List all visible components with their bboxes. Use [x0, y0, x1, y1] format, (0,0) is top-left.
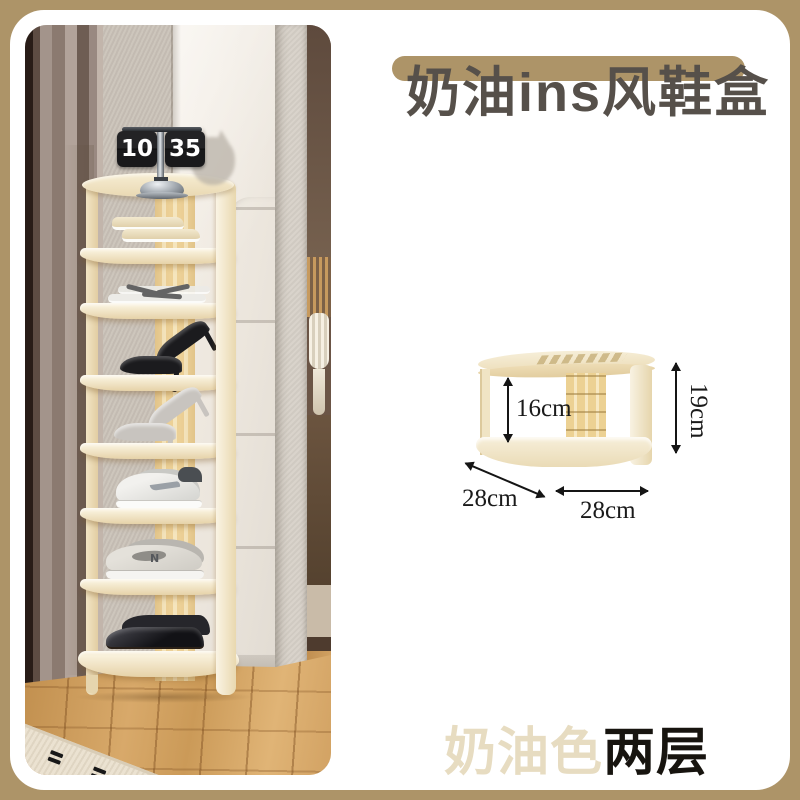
clock-stem	[157, 127, 164, 179]
gray-flip-flops	[108, 285, 214, 305]
clock-hour-card: 10	[117, 131, 157, 167]
high-top-sneakers	[116, 467, 204, 508]
width-arrow	[556, 490, 648, 492]
page-title: 奶油ins风鞋盒	[406, 48, 770, 127]
pleated-lamp	[309, 313, 329, 369]
heel-flat	[120, 356, 182, 374]
width-label: 28cm	[580, 497, 636, 525]
diagram-back-slats	[566, 373, 606, 447]
inner-height-label: 16cm	[516, 395, 572, 423]
dimension-diagram: 16cm 19cm 28cm 28cm	[440, 345, 750, 540]
depth-label: 28cm	[462, 485, 518, 513]
silver-high-heels	[114, 399, 206, 443]
lifestyle-photo: N 10 35	[25, 25, 331, 775]
runner-sole	[106, 570, 204, 579]
rack-shelf-2	[80, 303, 236, 319]
flip-clock: 10 35	[110, 121, 216, 199]
inner-height-arrow	[507, 378, 509, 442]
rack-shelf-6	[80, 579, 236, 595]
nook-band	[307, 637, 331, 651]
running-sneakers: N	[106, 539, 208, 579]
variant-tier-label: 两层	[603, 724, 709, 782]
slipper-right	[122, 229, 200, 242]
product-card: N 10 35 奶油ins风鞋盒	[10, 10, 790, 790]
variant-color-name: 奶油色	[444, 724, 603, 782]
clock-minute-card: 35	[165, 131, 205, 167]
side-nook	[307, 25, 331, 725]
nook-wall	[307, 585, 331, 637]
heel-flat	[114, 423, 176, 441]
rack-shelf-4	[80, 443, 236, 459]
rack-shelf-3	[80, 375, 236, 391]
black-dress-shoes	[106, 615, 212, 651]
runner-logo: N	[150, 552, 159, 565]
nook-cabinet	[307, 415, 331, 585]
rack-post-right	[216, 181, 236, 695]
rack-shelf-7	[78, 651, 239, 677]
header: 奶油ins风鞋盒	[390, 46, 790, 126]
cream-slippers	[112, 217, 207, 248]
total-height-arrow	[675, 363, 677, 453]
rack-shelf-5	[80, 508, 236, 524]
sneaker-collar	[178, 467, 202, 482]
wall-pillar	[275, 25, 307, 697]
dress-shoe-front	[106, 627, 204, 649]
nook-slats	[307, 257, 331, 317]
total-height-label: 19cm	[684, 383, 712, 439]
lamp-base	[313, 369, 325, 415]
corner-shoe-rack: N	[80, 125, 245, 705]
clock-base-foot	[136, 192, 188, 199]
rack-foot-left	[86, 675, 98, 693]
black-high-heels	[120, 331, 212, 376]
variant-caption: 奶油色两层	[444, 710, 709, 785]
rack-shelf-1	[80, 248, 236, 264]
nook-top	[307, 25, 331, 257]
sneaker-sole	[116, 500, 202, 508]
